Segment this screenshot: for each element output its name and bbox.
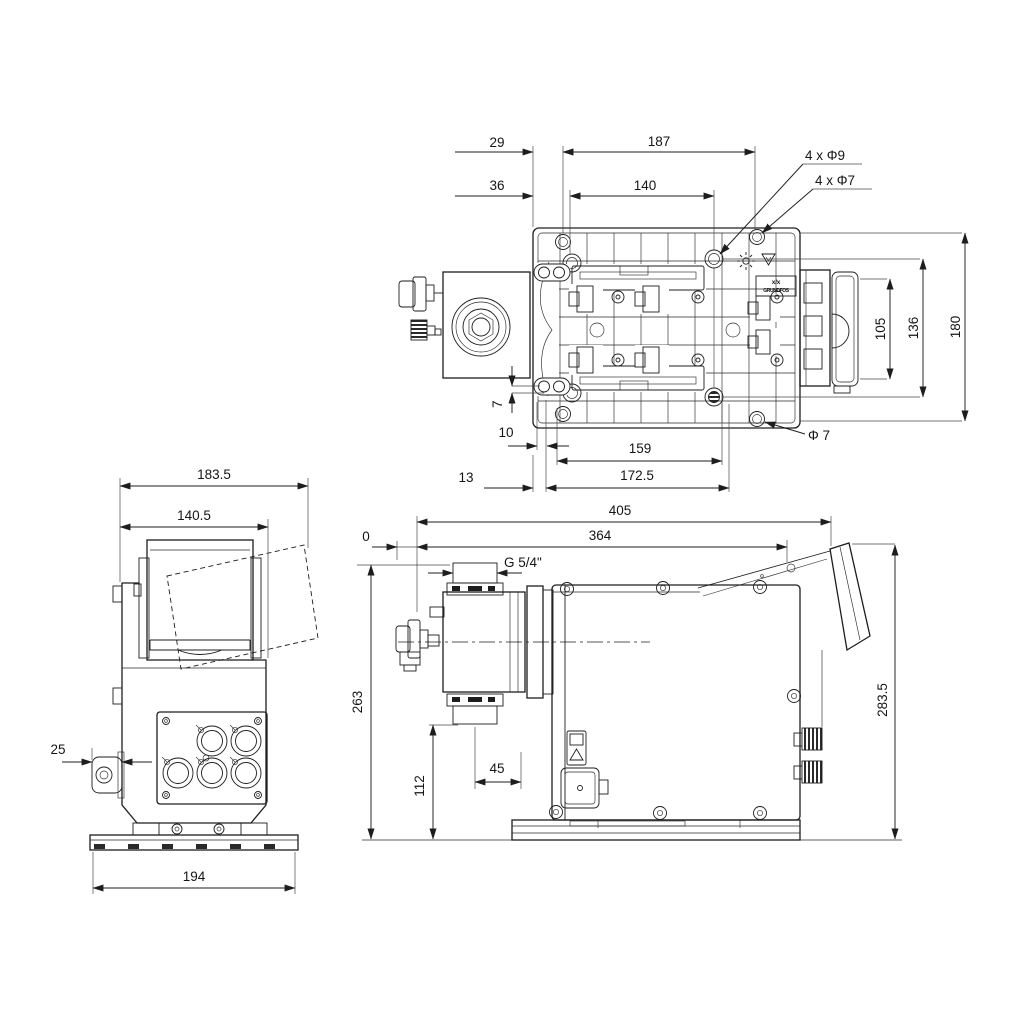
dim-105: 105 — [873, 318, 888, 341]
knob-icon — [802, 728, 822, 750]
warning-label — [567, 731, 586, 765]
type-label-line2: GRUNDFOS — [763, 288, 789, 294]
dim-194: 194 — [183, 869, 206, 884]
dimensional-drawing-page: x/x GRUNDFOS — [0, 0, 1024, 1024]
dim-159: 159 — [629, 441, 652, 456]
dim-283-5: 283.5 — [875, 683, 890, 717]
dim-7: 7 — [490, 400, 505, 408]
front-view-dimensions: 405 0 364 G 5/4" 263 112 45 283.5 — [350, 503, 895, 839]
top-view-dimensions: 29 187 36 140 4 x Φ9 4 x Φ7 105 136 180 — [455, 134, 965, 492]
dim-10: 10 — [498, 425, 513, 440]
recycling-triangle-icon — [762, 254, 775, 265]
control-panel-side — [134, 540, 318, 669]
cable-gland-front — [396, 607, 444, 671]
dim-140: 140 — [634, 178, 657, 193]
control-cube-top — [800, 270, 858, 393]
bleed-knob-top — [411, 320, 441, 340]
dim-136: 136 — [906, 317, 921, 340]
dim-thread: G 5/4" — [504, 555, 542, 570]
dosing-head-front — [396, 563, 650, 724]
dial-icon — [832, 314, 849, 348]
connector-panel — [157, 712, 267, 804]
dosing-head-top — [399, 272, 530, 378]
cable-gland-top — [399, 277, 443, 311]
dim-405: 405 — [609, 503, 632, 518]
top-view: x/x GRUNDFOS — [399, 134, 965, 492]
wall-bracket — [92, 752, 124, 798]
callout-4xphi7: 4 x Φ7 — [815, 173, 855, 188]
pump-housing-front — [550, 543, 871, 820]
dim-25: 25 — [50, 742, 65, 757]
dim-112: 112 — [412, 775, 427, 797]
callout-4xphi9: 4 x Φ9 — [805, 148, 845, 163]
dim-364: 364 — [589, 528, 612, 543]
dim-29: 29 — [489, 135, 504, 150]
dim-45: 45 — [489, 761, 504, 776]
dim-180: 180 — [948, 316, 963, 339]
warning-triangle-icon — [570, 749, 583, 760]
pump-dimensional-drawing: x/x GRUNDFOS — [0, 0, 1024, 1024]
clamp-fittings — [569, 284, 780, 375]
circular-connector-icon — [162, 725, 261, 788]
knob-icon — [804, 283, 822, 303]
knob-icon — [804, 316, 822, 336]
tilted-control-panel — [698, 543, 870, 727]
type-label-line1: x/x — [772, 279, 781, 286]
dim-phi7: Φ 7 — [808, 428, 830, 443]
knob-icon — [802, 761, 822, 783]
suction-thread — [447, 694, 503, 724]
housing-screws — [550, 581, 801, 820]
side-view: 183.5 140.5 25 194 — [50, 467, 318, 894]
base-plate-front — [512, 820, 800, 840]
dim-0: 0 — [362, 529, 370, 544]
side-knobs — [794, 728, 822, 783]
dim-140-5: 140.5 — [177, 508, 211, 523]
dim-187: 187 — [648, 134, 671, 149]
dim-13: 13 — [458, 470, 473, 485]
discharge-thread — [447, 563, 503, 595]
dim-36: 36 — [489, 178, 504, 193]
dim-263: 263 — [350, 691, 365, 714]
dim-183-5: 183.5 — [197, 467, 231, 482]
pump-body-side — [113, 583, 267, 835]
panel-button-icon — [787, 564, 795, 572]
knob-icon — [804, 349, 822, 369]
power-connector — [561, 768, 608, 808]
front-view: 405 0 364 G 5/4" 263 112 45 283.5 — [350, 503, 902, 840]
dim-172-5: 172.5 — [620, 468, 654, 483]
side-view-dimensions: 183.5 140.5 25 194 — [50, 467, 308, 894]
base-plate-side — [90, 835, 298, 850]
